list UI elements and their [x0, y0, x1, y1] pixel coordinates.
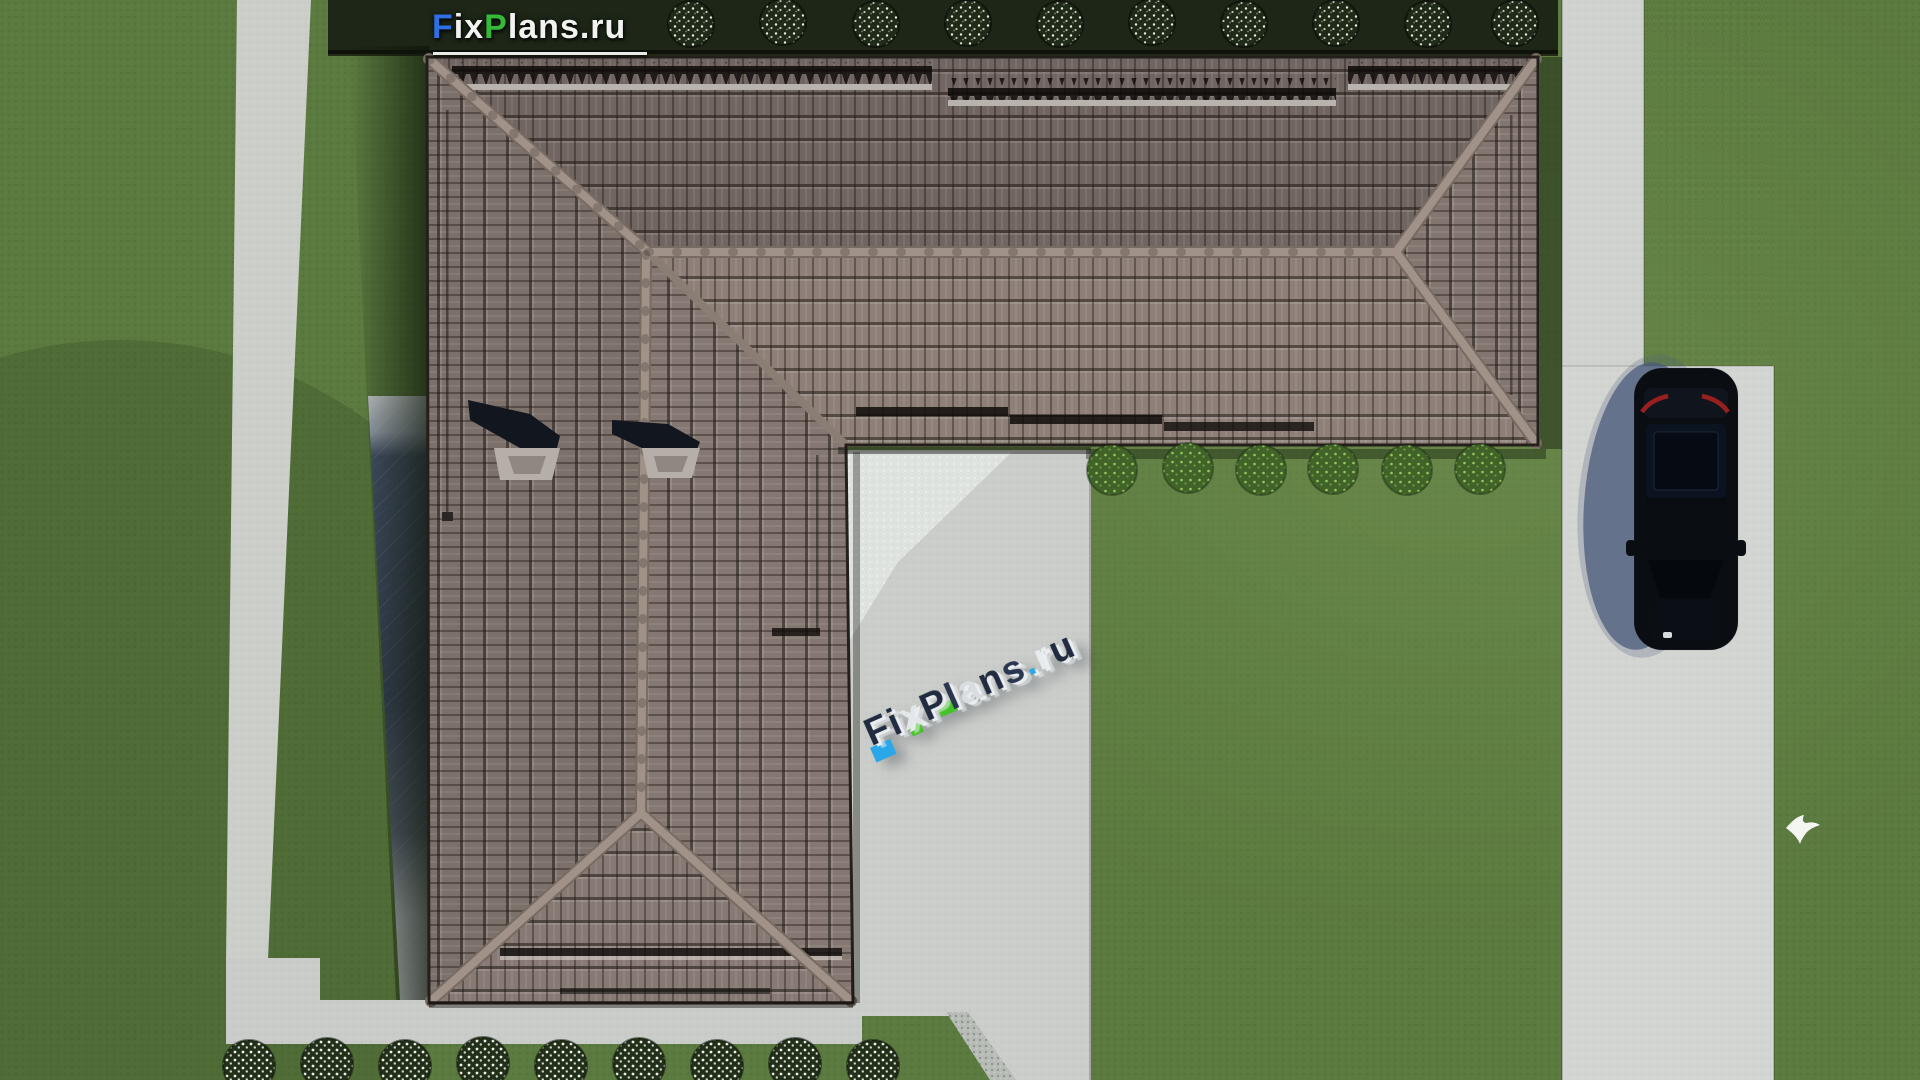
roof-window-frame-inner	[508, 456, 546, 474]
roof-seam	[1510, 115, 1513, 395]
flower-bush	[1492, 0, 1538, 46]
gable-snow-guard	[560, 988, 770, 994]
green-bush	[1163, 443, 1213, 493]
flower-bush	[945, 0, 991, 46]
car-plate-light	[1663, 632, 1672, 638]
flower-bush	[613, 1038, 665, 1080]
roof-vent-box	[442, 512, 453, 521]
car-sunroof	[1654, 432, 1718, 490]
flower-bush	[1313, 0, 1359, 46]
logo-letter: ix	[454, 8, 484, 46]
flower-bush	[668, 1, 714, 47]
flower-bush	[1405, 1, 1451, 47]
flower-bush	[760, 0, 806, 45]
car-hood	[1650, 600, 1722, 642]
flower-bush	[1221, 1, 1267, 47]
eave-serration	[948, 78, 1336, 100]
flower-bush	[1129, 0, 1175, 45]
flower-bush	[457, 1037, 509, 1080]
flower-bush	[769, 1038, 821, 1080]
site-plan-render: FixPlans.ru FixPlans.ru	[0, 0, 1920, 1080]
logo-letter: P	[484, 8, 508, 46]
snow-guard-bar	[1348, 84, 1533, 90]
green-bush	[1382, 445, 1432, 495]
south-eave-vent	[1164, 422, 1314, 431]
car-mirror-right	[1736, 540, 1746, 556]
site-logo: FixPlans.ru	[432, 8, 626, 47]
car-roof-pillar	[1646, 498, 1726, 504]
gable-snow-guard-bar	[500, 956, 842, 960]
east-shadow	[1540, 57, 1562, 449]
green-bush	[1308, 444, 1358, 494]
roof-seam	[816, 455, 819, 633]
eave-serration	[1348, 62, 1533, 84]
south-eave-vent	[1010, 415, 1162, 424]
green-bush	[1236, 445, 1286, 495]
logo-letter: lans.ru	[508, 8, 626, 46]
flower-bush	[1037, 1, 1083, 47]
snow-guard-bar	[452, 84, 932, 90]
logo-letter: F	[432, 8, 454, 46]
south-eave-vent	[856, 407, 1008, 416]
car-mirror-left	[1626, 540, 1636, 556]
roof-seam	[446, 110, 449, 520]
courtyard-eave-shadow	[838, 447, 1091, 454]
green-bush	[1455, 444, 1505, 494]
site-render-svg	[0, 0, 1920, 1080]
inner-east-vent	[772, 628, 820, 636]
flower-bush-row-bottom	[223, 1037, 899, 1080]
south-eave-shadow	[429, 1001, 853, 1008]
site-logo-underline	[433, 52, 647, 55]
green-bush	[1087, 445, 1137, 495]
east-eave-shadow	[853, 452, 860, 1003]
snow-guard-bar	[948, 100, 1336, 106]
flower-bush	[853, 1, 899, 47]
flower-bush	[301, 1038, 353, 1080]
eave-serration	[452, 62, 932, 84]
